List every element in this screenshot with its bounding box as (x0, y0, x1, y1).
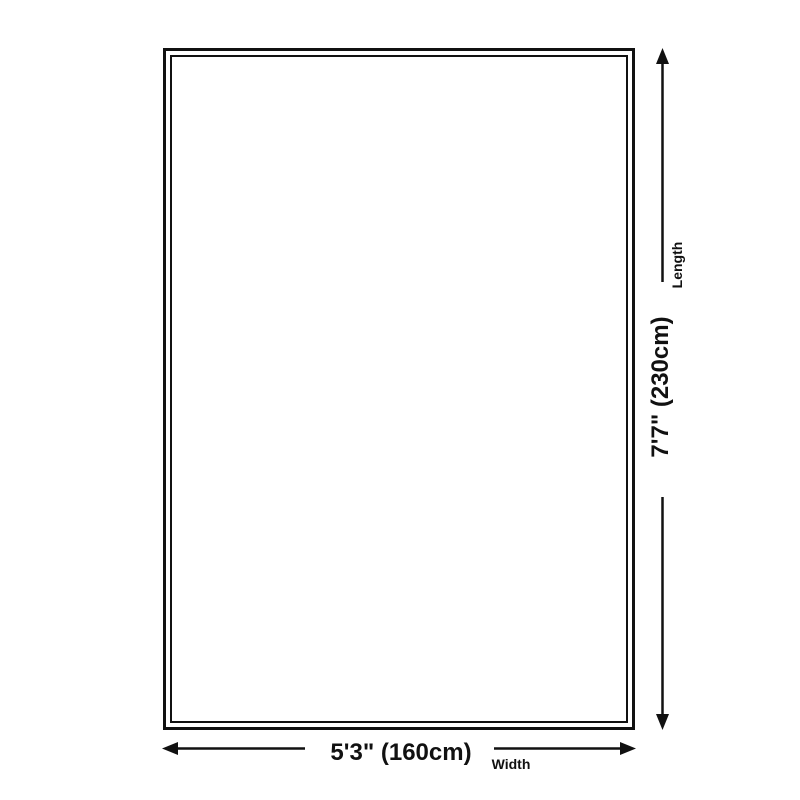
length-label: Length (669, 242, 685, 289)
width-value: 5'3" (160cm) (330, 739, 471, 767)
dimension-diagram: 7'7" (230cm) Length 5'3" (160cm) Width (0, 0, 800, 800)
dimension-arrows (0, 0, 800, 800)
arrow-down-icon (656, 714, 669, 730)
length-value: 7'7" (230cm) (647, 316, 675, 457)
arrow-right-icon (620, 742, 636, 755)
width-label: Width (492, 756, 531, 772)
